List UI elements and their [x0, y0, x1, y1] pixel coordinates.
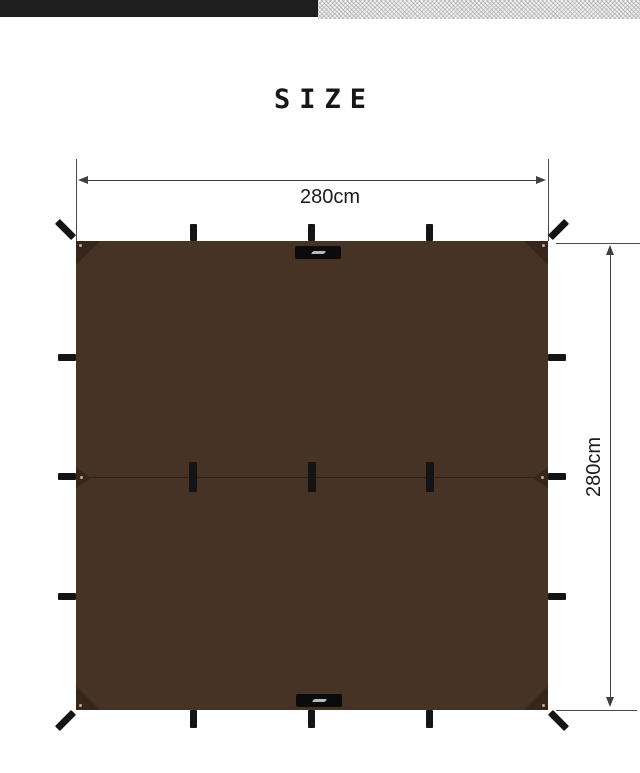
- loop-corner-top-left-icon: [55, 219, 76, 240]
- brand-logo-patch-top: [295, 246, 341, 259]
- arrow-up-icon: [606, 245, 614, 255]
- grommet-dot-top-right: [542, 244, 545, 247]
- loop-top-center-icon: [308, 224, 315, 241]
- height-dimension-label: 280cm: [583, 407, 605, 527]
- arrow-right-icon: [536, 176, 546, 184]
- loop-bottom-center-icon: [308, 710, 315, 728]
- width-extension-line-left: [76, 159, 77, 241]
- loop-top-quarter-icon: [190, 224, 197, 241]
- width-extension-line-right: [548, 159, 549, 241]
- loop-ridge-center-icon: [308, 462, 316, 492]
- arrow-left-icon: [78, 176, 88, 184]
- arrow-down-icon: [606, 697, 614, 707]
- grommet-dot-bottom-right: [542, 704, 545, 707]
- loop-left-quarter-icon: [58, 354, 76, 361]
- brand-logo-icon: [310, 251, 325, 254]
- brand-logo-patch-bottom: [296, 694, 342, 707]
- grommet-dot-top-left: [79, 244, 82, 247]
- loop-right-threequarter-icon: [548, 593, 566, 600]
- loop-top-threequarter-icon: [426, 224, 433, 241]
- loop-corner-top-right-icon: [548, 219, 569, 240]
- height-dimension-line: [610, 247, 611, 705]
- header-bar-dark: [0, 0, 318, 17]
- loop-bottom-threequarter-icon: [426, 710, 433, 728]
- loop-left-threequarter-icon: [58, 593, 76, 600]
- height-extension-line-top: [556, 243, 640, 244]
- size-diagram-page: SIZE 280cm 280cm: [0, 0, 640, 773]
- grommet-dot-mid-right: [541, 476, 544, 479]
- loop-ridge-threequarter-icon: [426, 462, 434, 492]
- grommet-dot-bottom-left: [79, 704, 82, 707]
- loop-ridge-quarter-icon: [189, 462, 197, 492]
- header-bar-hatched: [318, 0, 640, 19]
- loop-right-center-icon: [548, 473, 566, 480]
- seam-reinforcement-left: [76, 467, 91, 489]
- loop-corner-bottom-left-icon: [55, 710, 76, 731]
- height-extension-line-bottom: [556, 710, 637, 711]
- page-title: SIZE: [0, 84, 640, 115]
- grommet-dot-mid-left: [80, 476, 83, 479]
- loop-bottom-quarter-icon: [190, 710, 197, 728]
- loop-left-center-icon: [58, 473, 76, 480]
- loop-right-quarter-icon: [548, 354, 566, 361]
- loop-corner-bottom-right-icon: [548, 710, 569, 731]
- width-dimension-line: [80, 180, 544, 181]
- brand-logo-icon: [311, 699, 326, 702]
- width-dimension-label: 280cm: [270, 186, 390, 208]
